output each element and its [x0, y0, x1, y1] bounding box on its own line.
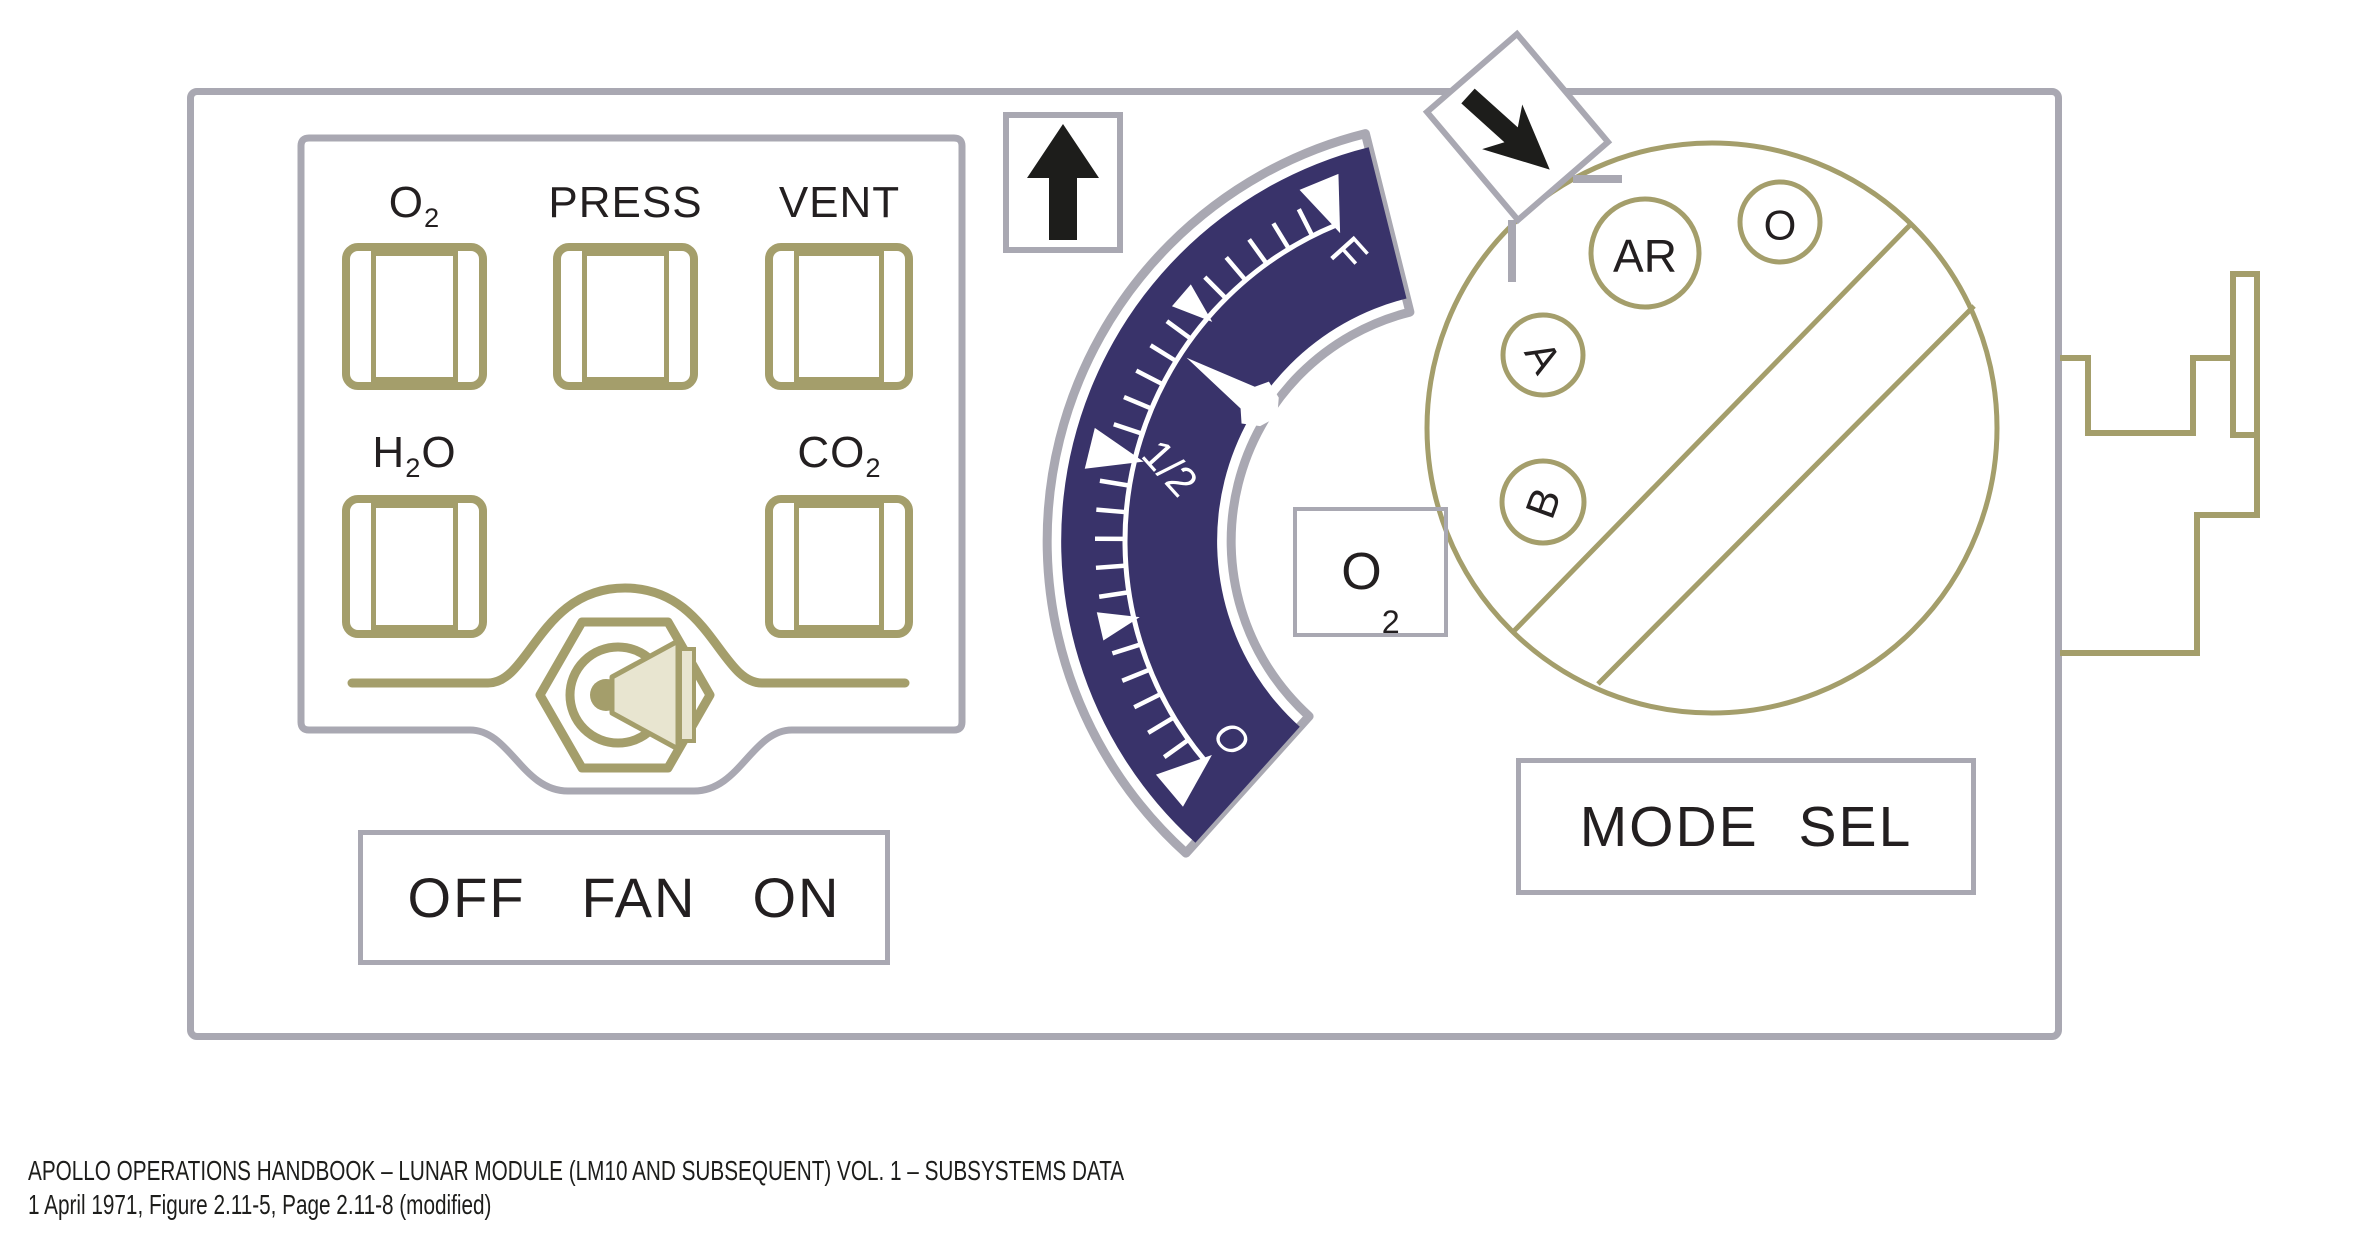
valve-handle-bar [680, 649, 694, 741]
up-arrow-indicator-box [1003, 112, 1123, 253]
fan-switch-legend: OFF FAN ON [358, 830, 890, 965]
panel-edge-connector-notch [2233, 358, 2257, 435]
figure-canvas: O2 PRESS VENT H2O CO2 F 1/2 O [0, 0, 2362, 1241]
fan-on-label: ON [752, 865, 840, 930]
mode-sel-tag: MODE SEL [1516, 758, 1976, 895]
figure-caption: APOLLO OPERATIONS HANDBOOK – LUNAR MODUL… [28, 1154, 1828, 1222]
fan-valve-knob[interactable] [540, 622, 710, 768]
fan-off-label: OFF [408, 865, 526, 930]
mode-position-ar-label: AR [1613, 230, 1677, 282]
gauge-tick [1096, 566, 1126, 568]
gauge-tick [1096, 510, 1126, 513]
mode-position-o-label: O [1764, 202, 1797, 249]
figure-artwork: F 1/2 O AR O A B [0, 0, 2362, 1241]
o2-gauge-tag: O2 [1293, 507, 1448, 637]
caption-line-1: APOLLO OPERATIONS HANDBOOK – LUNAR MODUL… [28, 1154, 1360, 1188]
fan-label: FAN [582, 865, 697, 930]
caption-line-2: 1 April 1971, Figure 2.11-5, Page 2.11-8… [28, 1188, 1360, 1222]
panel-edge-connector [2060, 274, 2257, 653]
